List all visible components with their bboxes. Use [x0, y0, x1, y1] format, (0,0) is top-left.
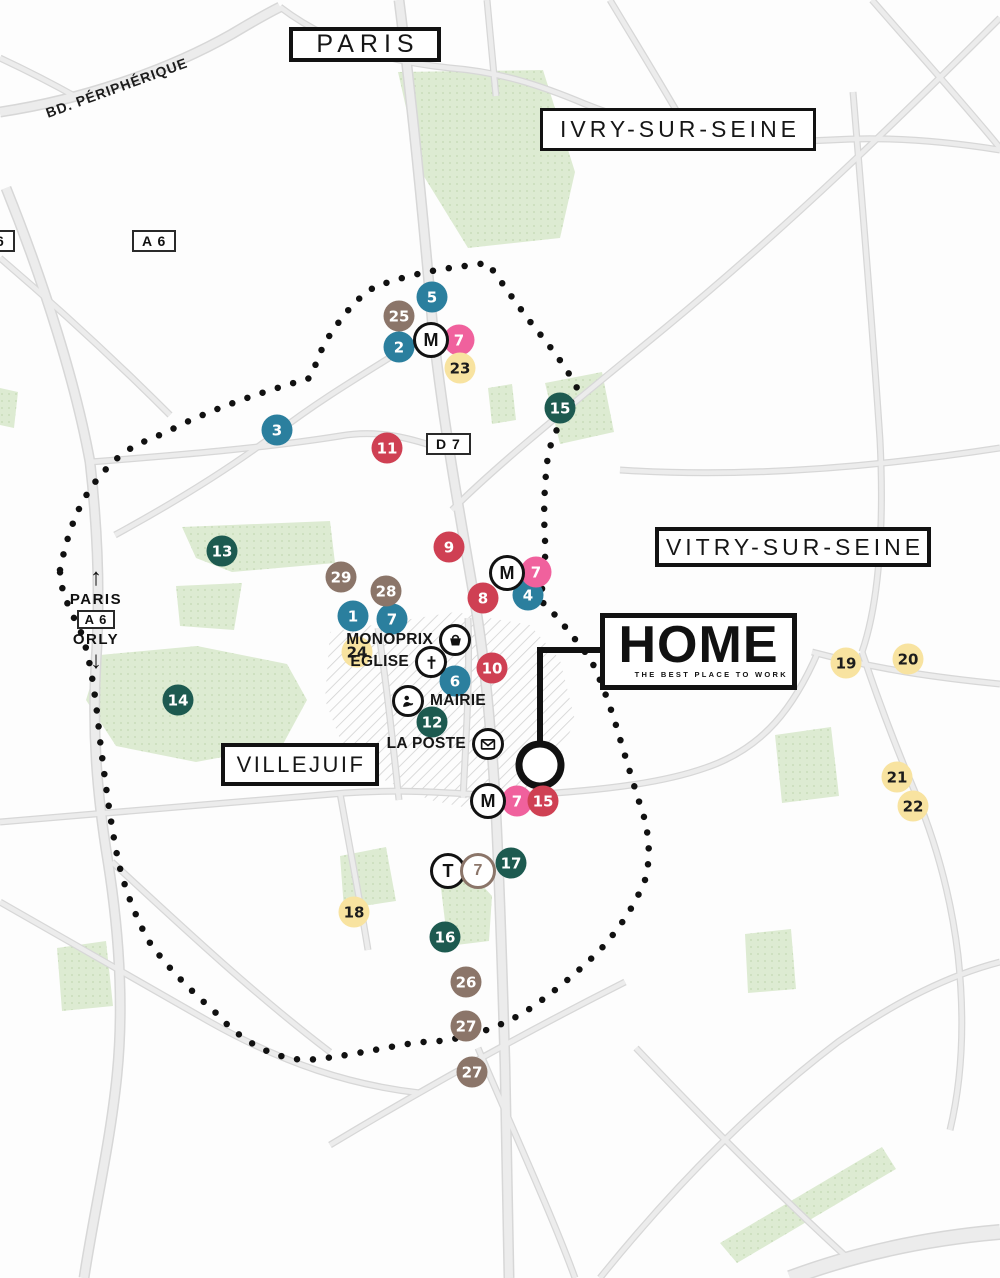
- poi-label-monoprix: MONOPRIX: [346, 631, 433, 649]
- poi-marker-23: 23: [445, 353, 476, 384]
- home-subtitle: THE BEST PLACE TO WORK: [635, 670, 788, 679]
- city-label-vitry-sur-seine: VITRY-SUR-SEINE: [655, 527, 931, 567]
- a6-road-badge: A 6: [132, 230, 176, 252]
- city-label-paris: PARIS: [289, 27, 441, 62]
- poi-marker-5: 5: [417, 282, 448, 313]
- d7-road-badge: D 7: [426, 433, 471, 455]
- poi-marker-16: 16: [430, 922, 461, 953]
- poi-marker-22: 22: [898, 791, 929, 822]
- poi-marker-7: 7: [377, 604, 408, 635]
- poi-marker-7: 7: [521, 557, 552, 588]
- poi-marker-21: 21: [882, 762, 913, 793]
- poi-marker-18: 18: [339, 897, 370, 928]
- a6-road-badge-partial: 6: [0, 230, 15, 252]
- a6-direction-sign: ↑ PARIS A 6 ORLY ↓: [58, 566, 134, 673]
- home-title: HOME: [619, 622, 779, 669]
- city-label-villejuif: VILLEJUIF: [221, 743, 379, 786]
- poi-marker-8: 8: [468, 583, 499, 614]
- poi-marker-12: 12: [417, 707, 448, 738]
- poi-marker-29: 29: [326, 562, 357, 593]
- poi-marker-17: 17: [496, 848, 527, 879]
- poi-marker-1: 1: [338, 601, 369, 632]
- home-callout-box: HOME THE BEST PLACE TO WORK: [600, 613, 797, 690]
- arrow-up-icon: ↑: [90, 566, 102, 590]
- poi-marker-13: 13: [207, 536, 238, 567]
- envelope-icon: [472, 728, 504, 760]
- poi-marker-28: 28: [371, 576, 402, 607]
- metro-badge: M: [470, 783, 506, 819]
- poi-label-la-poste: LA POSTE: [387, 735, 466, 753]
- poi-marker-15: 15: [528, 786, 559, 817]
- poi-marker-11: 11: [372, 433, 403, 464]
- metro-badge: M: [489, 555, 525, 591]
- poi-marker-2: 2: [384, 332, 415, 363]
- poi-marker-3: 3: [262, 415, 293, 446]
- direction-orly-label: ORLY: [73, 631, 119, 648]
- poi-marker-26: 26: [451, 967, 482, 998]
- poi-marker-25: 25: [384, 301, 415, 332]
- poi-label-eglise: EGLISE: [350, 653, 409, 671]
- tram-line-badge: 7: [460, 853, 496, 889]
- poi-marker-15: 15: [545, 393, 576, 424]
- poi-marker-27: 27: [457, 1057, 488, 1088]
- poi-marker-10: 10: [477, 653, 508, 684]
- city-label-ivry-sur-seine: IVRY-SUR-SEINE: [540, 108, 816, 151]
- poi-marker-9: 9: [434, 532, 465, 563]
- arrow-down-icon: ↓: [90, 649, 102, 673]
- poi-marker-19: 19: [831, 648, 862, 679]
- church-cross-icon: [415, 646, 447, 678]
- home-location-ring: [519, 744, 561, 786]
- poi-marker-20: 20: [893, 644, 924, 675]
- villejuif-area-map: BD. PÉRIPHÉRIQUE PARIS IVRY-SUR-SEINE VI…: [0, 0, 1000, 1278]
- poi-marker-14: 14: [163, 685, 194, 716]
- poi-label-mairie: MAIRIE: [430, 692, 486, 710]
- map-base-layer: BD. PÉRIPHÉRIQUE: [0, 0, 1000, 1278]
- direction-paris-label: PARIS: [70, 591, 122, 608]
- poi-marker-27: 27: [451, 1011, 482, 1042]
- a6-direction-badge: A 6: [77, 610, 116, 629]
- metro-badge: M: [413, 322, 449, 358]
- shopping-basket-icon: [439, 624, 471, 656]
- person-icon: [392, 685, 424, 717]
